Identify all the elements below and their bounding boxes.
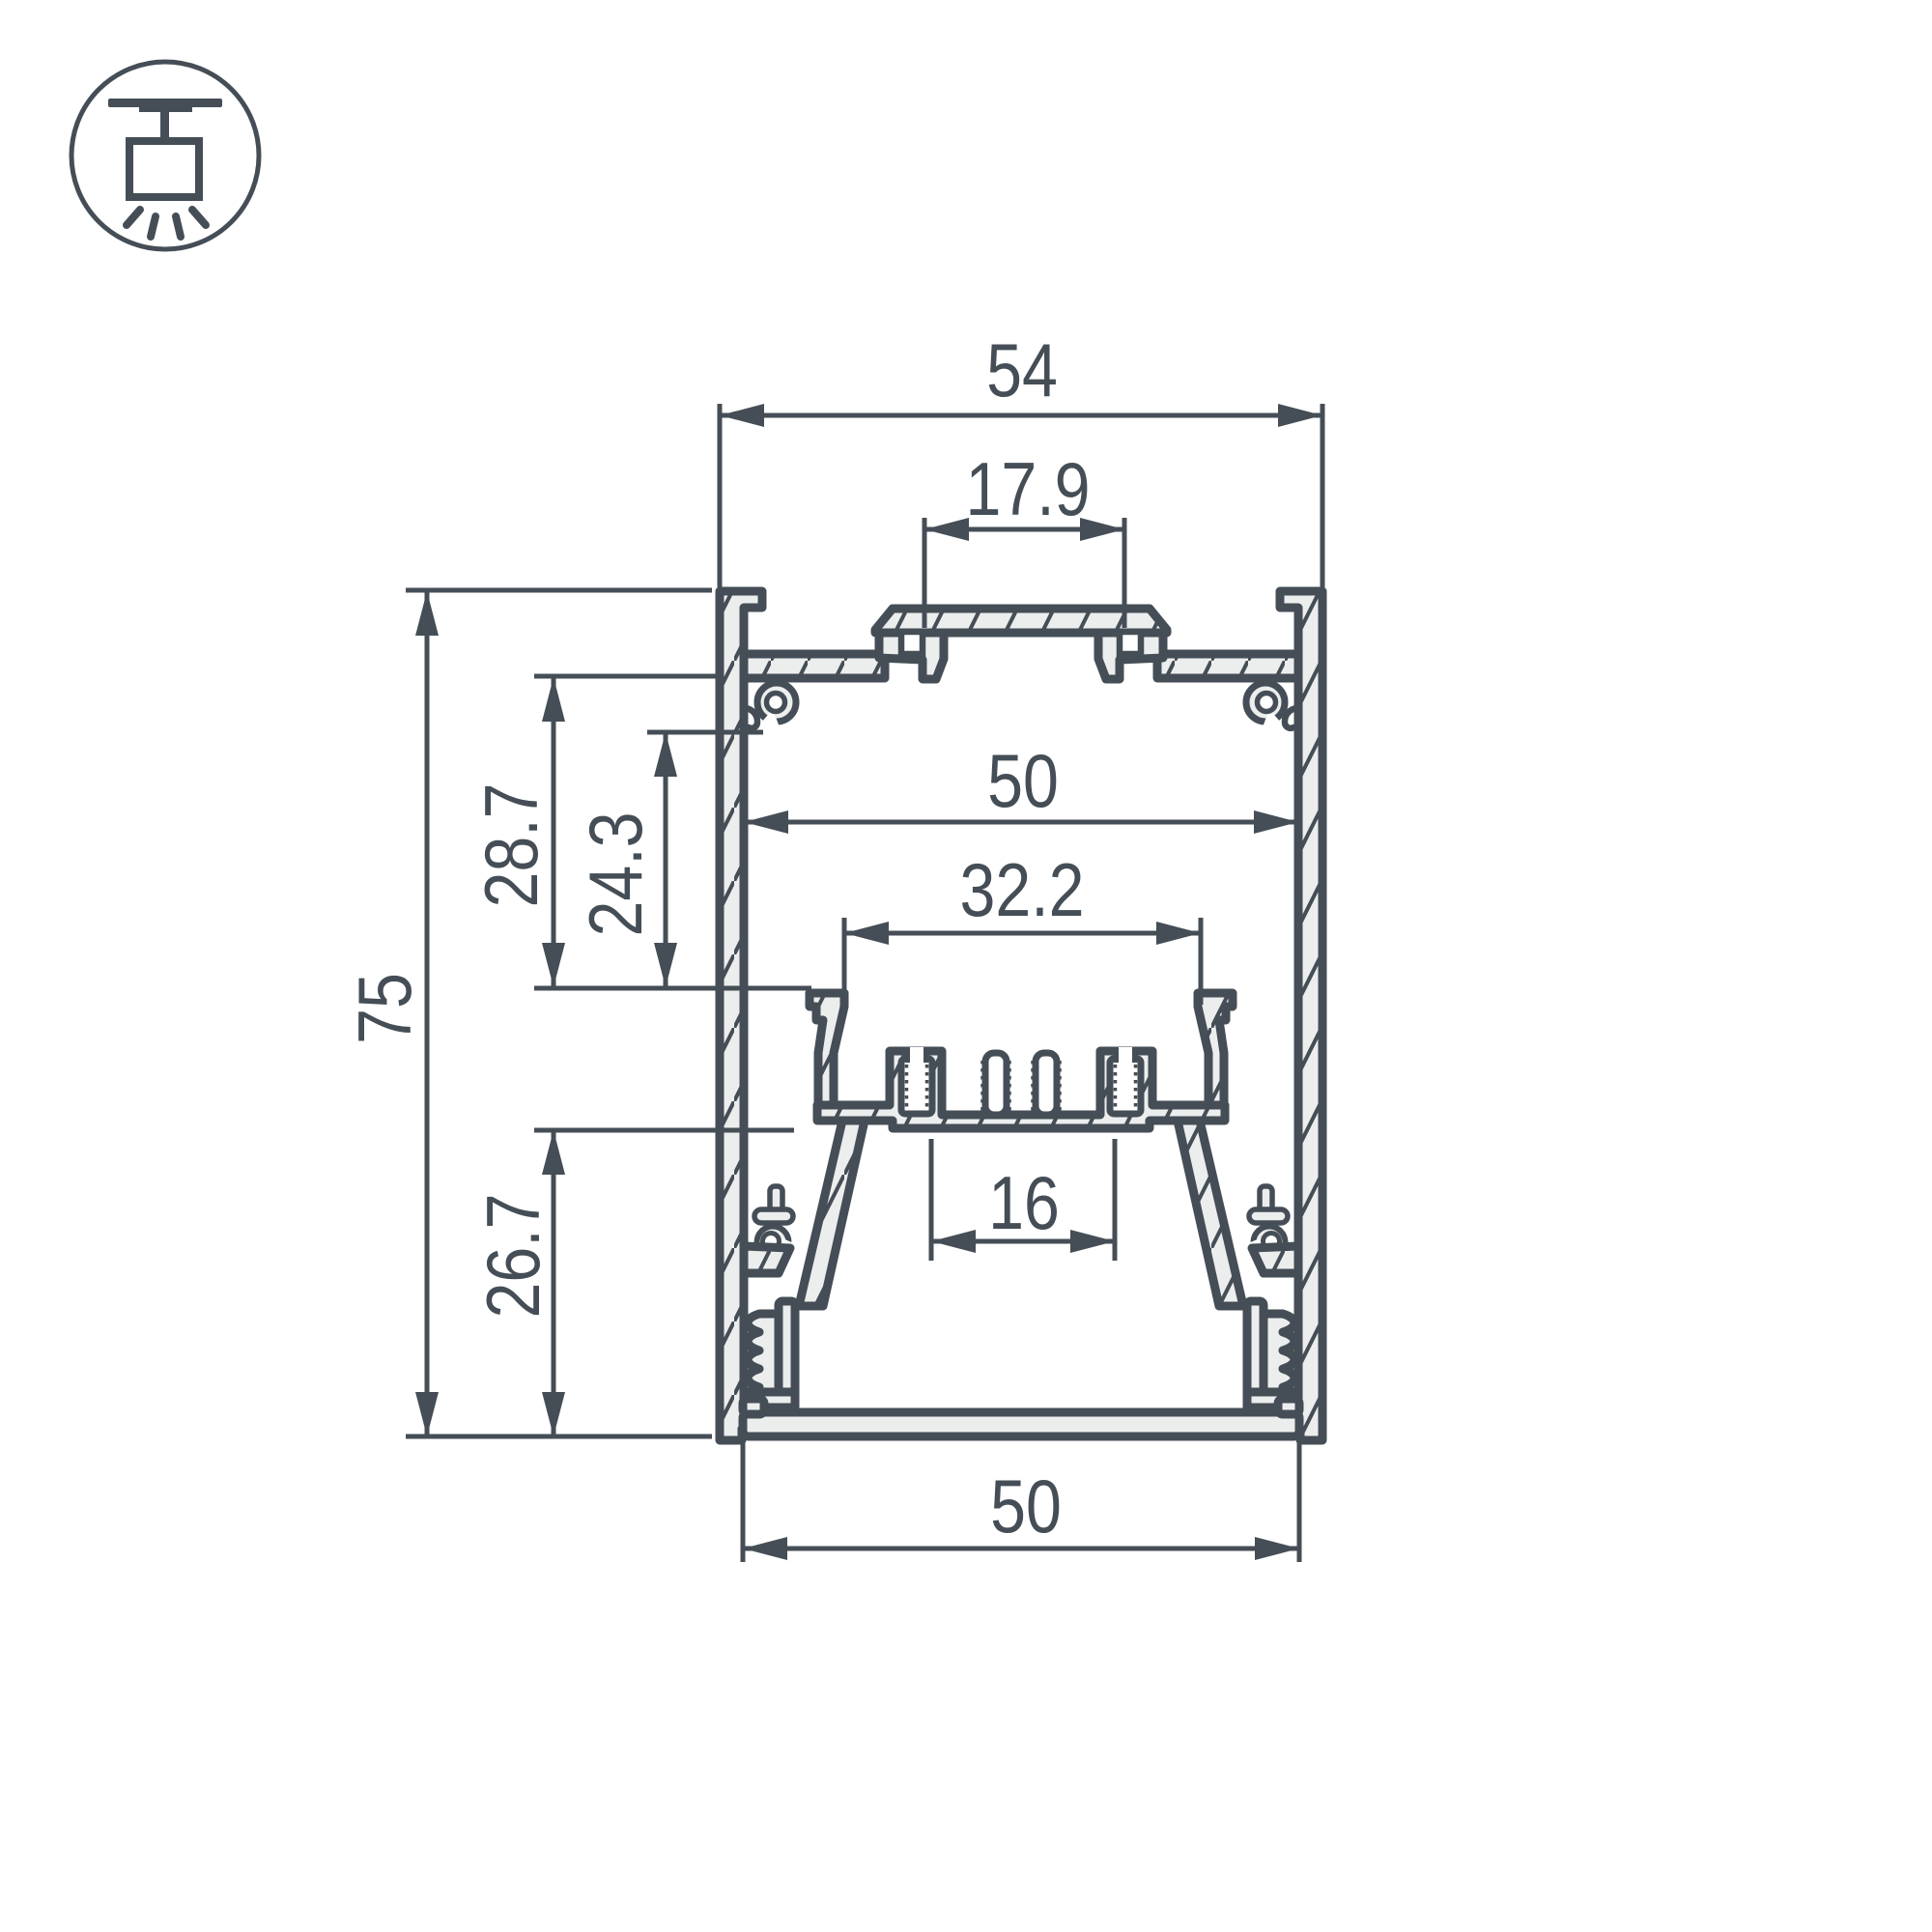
svg-text:50: 50 (987, 739, 1059, 823)
svg-text:54: 54 (986, 328, 1058, 412)
svg-text:17.9: 17.9 (965, 447, 1090, 531)
svg-text:16: 16 (988, 1161, 1060, 1245)
svg-text:26.7: 26.7 (471, 1193, 555, 1318)
svg-text:32.2: 32.2 (959, 848, 1084, 932)
svg-text:28.7: 28.7 (469, 782, 554, 907)
svg-text:24.3: 24.3 (574, 811, 658, 936)
svg-text:50: 50 (990, 1464, 1062, 1548)
svg-text:75: 75 (343, 973, 427, 1044)
